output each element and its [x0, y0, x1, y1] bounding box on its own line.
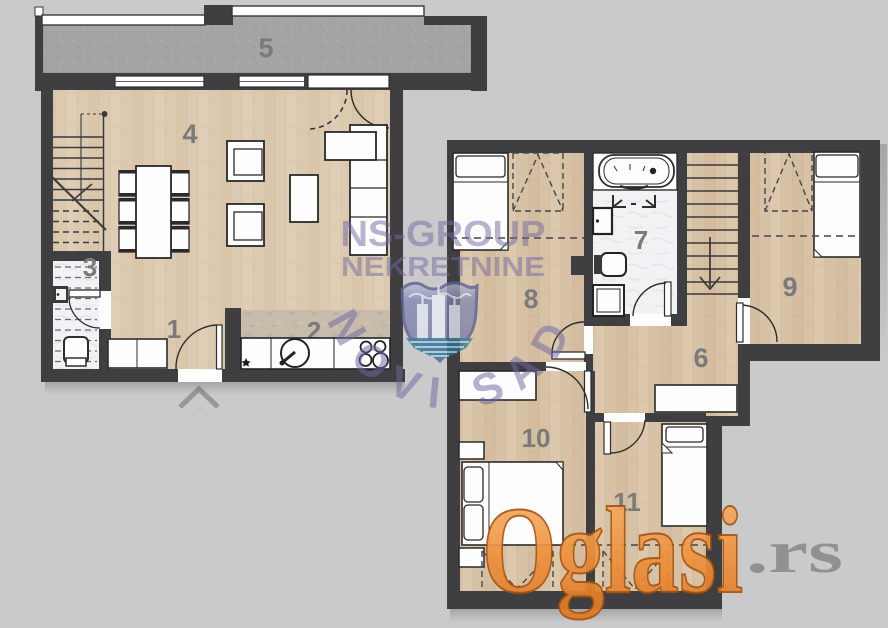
svg-text:1: 1: [167, 314, 181, 344]
svg-text:6: 6: [693, 343, 708, 373]
svg-text:.rs: .rs: [746, 519, 843, 585]
svg-text:8: 8: [523, 284, 538, 314]
svg-text:7: 7: [634, 225, 648, 255]
svg-text:NS-GROUP: NS-GROUP: [341, 213, 546, 254]
svg-text:9: 9: [782, 272, 797, 302]
svg-text:10: 10: [522, 423, 551, 453]
svg-text:4: 4: [182, 119, 197, 149]
svg-text:NEKRETNINE: NEKRETNINE: [341, 251, 545, 282]
svg-text:Oglasi: Oglasi: [482, 482, 743, 620]
svg-text:5: 5: [258, 33, 273, 63]
svg-text:3: 3: [83, 252, 97, 282]
